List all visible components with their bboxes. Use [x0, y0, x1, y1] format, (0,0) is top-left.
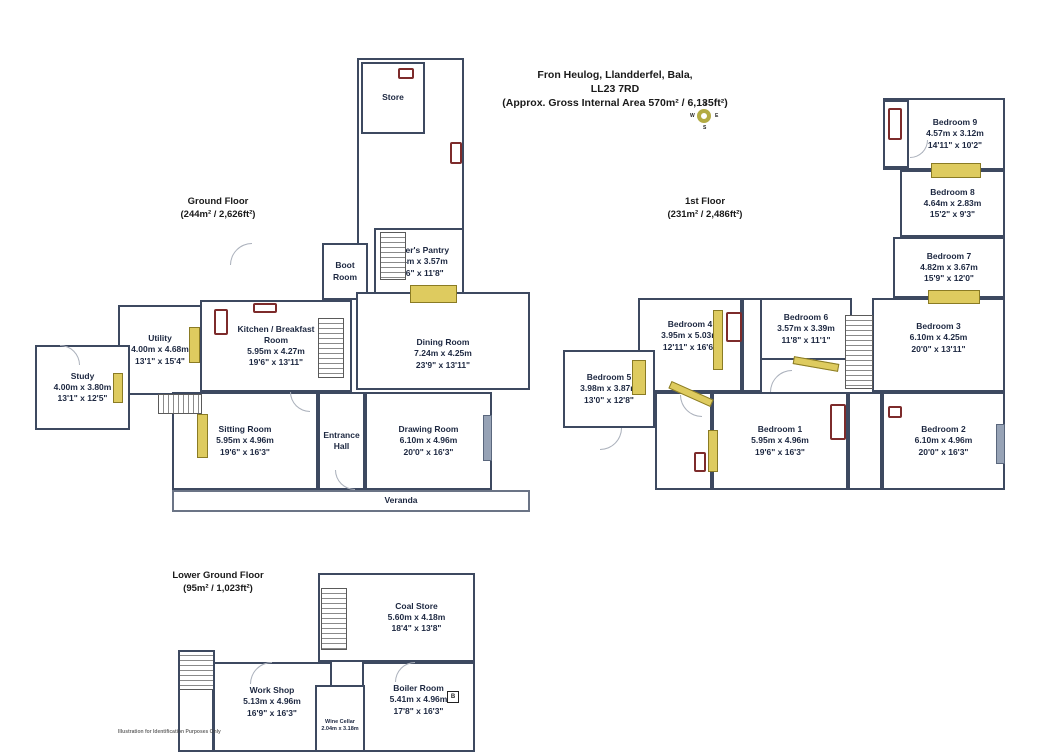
door-arc — [770, 370, 792, 392]
room-boiler-label: Boiler Room 5.41m x 4.96m 17'8" x 16'3" — [390, 683, 448, 730]
room-dim-imperial: 13'0" x 12'8" — [580, 395, 638, 406]
stove-icon — [253, 303, 277, 313]
stairs-lower — [321, 588, 347, 650]
room-bedroom3-label: Bedroom 3 6.10m x 4.25m 20'0" x 13'11" — [910, 321, 968, 368]
window — [632, 360, 646, 395]
bath-icon — [888, 108, 902, 140]
room-utility-label: Utility 4.00m x 4.68m 13'1" x 15'4" — [121, 333, 199, 366]
stairs-utility — [158, 394, 202, 414]
veranda-label: Veranda — [284, 495, 417, 506]
room-name: Work Shop — [243, 685, 301, 696]
room-wine-cellar-label: Wine Cellar 2.04m x 3.18m — [318, 705, 362, 733]
room-dim-metric: 5.95m x 4.27m — [229, 346, 324, 357]
compass-north: N — [703, 101, 707, 107]
room-boot-room-label: Boot Room — [329, 260, 361, 282]
ground-floor-label: Ground Floor (244m² / 2,626ft²) — [138, 196, 298, 222]
room-name: Coal Store — [388, 601, 446, 612]
room-name: Bedroom 3 — [910, 321, 968, 332]
room-dim-imperial: 15'9" x 12'0" — [920, 273, 978, 284]
room-dim-imperial: 20'0" x 16'3" — [399, 447, 459, 458]
room-dim-metric: 6.10m x 4.25m — [910, 332, 968, 343]
room-dim-imperial: 13'1" x 12'5" — [54, 393, 112, 404]
room-store-label: Store — [382, 92, 404, 103]
room-bedroom6-label: Bedroom 6 3.57m x 3.39m 11'8" x 11'1" — [777, 312, 835, 345]
lower-ground-floor-name: Lower Ground Floor — [138, 570, 298, 583]
room-study-label: Study 4.00m x 3.80m 13'1" x 12'5" — [54, 371, 112, 404]
room-dim-metric: 5.60m x 4.18m — [388, 612, 446, 623]
room-dim-imperial: 23'9" x 13'11" — [414, 360, 472, 371]
room-store: Store — [361, 62, 425, 134]
title-line-1: Fron Heulog, Llandderfel, Bala, — [480, 68, 750, 82]
compass-west: W — [690, 113, 695, 119]
room-name: Bedroom 7 — [920, 251, 978, 262]
window — [713, 310, 723, 370]
room-sitting-label: Sitting Room 5.95m x 4.96m 19'6" x 16'3" — [216, 424, 274, 457]
room-workshop: Work Shop 5.13m x 4.96m 16'9" x 16'3" — [212, 662, 332, 752]
room-bedroom1: Bedroom 1 5.95m x 4.96m 19'6" x 16'3" — [712, 392, 848, 490]
room-dim-imperial: 19'6" x 16'3" — [216, 447, 274, 458]
room-dim-imperial: 20'0" x 13'11" — [910, 344, 968, 355]
door-arc — [230, 243, 252, 265]
glazed-panel — [483, 415, 492, 461]
boiler-marker: B — [447, 691, 459, 703]
room-dim-imperial: 20'0" x 16'3" — [915, 447, 973, 458]
room-drawing: Drawing Room 6.10m x 4.96m 20'0" x 16'3" — [365, 392, 492, 490]
compass-east: E — [715, 113, 718, 119]
lower-ground-floor-area: (95m² / 1,023ft²) — [138, 583, 298, 596]
room-name: Bedroom 2 — [915, 424, 973, 435]
room-bedroom7: Bedroom 7 4.82m x 3.67m 15'9" x 12'0" — [893, 237, 1005, 298]
title-line-2: LL23 7RD — [480, 82, 750, 96]
veranda: Veranda — [172, 490, 530, 512]
room-dim-imperial: 17'8" x 16'3" — [390, 706, 448, 717]
room-name: Bedroom 1 — [751, 424, 809, 435]
room-name: Wine Cellar — [318, 719, 362, 726]
window — [189, 327, 200, 363]
room-name: Bedroom 5 — [580, 372, 638, 383]
toilet-icon — [694, 452, 706, 472]
room-name: Bedroom 6 — [777, 312, 835, 323]
room-bedroom3: Bedroom 3 6.10m x 4.25m 20'0" x 13'11" — [872, 298, 1005, 392]
room-dim-metric: 7.24m x 4.25m — [414, 348, 472, 359]
room-dim-imperial: 14'11" x 10'2" — [926, 140, 984, 151]
floorplan-page: Fron Heulog, Llandderfel, Bala, LL23 7RD… — [0, 0, 1038, 752]
room-bedroom1-label: Bedroom 1 5.95m x 4.96m 19'6" x 16'3" — [751, 424, 809, 457]
room-boiler: Boiler Room 5.41m x 4.96m 17'8" x 16'3" — [362, 662, 475, 752]
room-name: Study — [54, 371, 112, 382]
entry-corridor — [178, 650, 215, 752]
room-name: Bedroom 8 — [924, 187, 982, 198]
room-dim-metric: 5.13m x 4.96m — [243, 696, 301, 707]
room-dim-metric: 5.41m x 4.96m — [390, 694, 448, 705]
door-arc — [600, 428, 622, 450]
room-dim-metric: 3.57m x 3.39m — [777, 323, 835, 334]
room-dim-metric: 4.82m x 3.67m — [920, 262, 978, 273]
room-dim-metric: 6.10m x 4.96m — [915, 435, 973, 446]
room-bedroom8-label: Bedroom 8 4.64m x 2.83m 15'2" x 9'3" — [924, 187, 982, 220]
room-dim-imperial: 18'4" x 13'8" — [388, 623, 446, 634]
compass-south: S — [703, 125, 706, 131]
room-dim-imperial: 19'6" x 16'3" — [751, 447, 809, 458]
room-name: Sitting Room — [216, 424, 274, 435]
appliance-icon — [214, 309, 228, 335]
window — [410, 285, 457, 303]
room-dining-label: Dining Room 7.24m x 4.25m 23'9" x 13'11" — [414, 311, 472, 370]
room-name: Bedroom 9 — [926, 117, 984, 128]
room-name: Utility — [121, 333, 199, 344]
room-dim-metric: 3.95m x 5.03m — [661, 330, 719, 341]
sink-icon — [888, 406, 902, 418]
room-name: Kitchen / Breakfast Room — [229, 324, 324, 346]
window — [197, 414, 208, 458]
room-dim-metric: 6.10m x 4.96m — [399, 435, 459, 446]
room-bedroom5-label: Bedroom 5 3.98m x 3.87m 13'0" x 12'8" — [580, 372, 638, 405]
room-bedroom4-label: Bedroom 4 3.95m x 5.03m 12'11" x 16'6" — [661, 319, 719, 370]
window — [931, 163, 981, 178]
window — [113, 373, 123, 403]
ground-floor-name: Ground Floor — [138, 196, 298, 209]
bathroom — [742, 298, 762, 392]
stairs-pantry — [380, 232, 406, 280]
room-dim-metric: 5.95m x 4.96m — [751, 435, 809, 446]
compass-icon: N E S W — [692, 104, 718, 130]
room-name: Drawing Room — [399, 424, 459, 435]
room-dim-imperial: 13'1" x 15'4" — [121, 356, 199, 367]
room-bedroom7-label: Bedroom 7 4.82m x 3.67m 15'9" x 12'0" — [920, 251, 978, 284]
room-dim-imperial: 12'11" x 16'6" — [661, 342, 719, 353]
lower-ground-floor-label: Lower Ground Floor (95m² / 1,023ft²) — [138, 570, 298, 596]
toilet-icon — [726, 312, 742, 342]
room-kitchen-label: Kitchen / Breakfast Room 5.95m x 4.27m 1… — [229, 324, 324, 368]
stairs-first — [845, 315, 873, 389]
room-bedroom2-label: Bedroom 2 6.10m x 4.96m 20'0" x 16'3" — [915, 424, 973, 457]
room-name: Boiler Room — [390, 683, 448, 694]
room-bedroom8: Bedroom 8 4.64m x 2.83m 15'2" x 9'3" — [900, 170, 1005, 237]
room-dim-imperial: 16'9" x 16'3" — [243, 708, 301, 719]
first-floor-area: (231m² / 2,486ft²) — [625, 209, 785, 222]
room-dim-metric: 4.57m x 3.12m — [926, 128, 984, 139]
ground-floor-area: (244m² / 2,626ft²) — [138, 209, 298, 222]
room-coal-store-label: Coal Store 5.60m x 4.18m 18'4" x 13'8" — [348, 601, 446, 634]
room-dim-metric: 2.04m x 3.18m — [318, 726, 362, 733]
room-dim-imperial: 19'6" x 13'11" — [229, 357, 324, 368]
room-dim-metric: 4.00m x 3.80m — [54, 382, 112, 393]
room-name: Dining Room — [414, 337, 472, 348]
room-dim-metric: 5.95m x 4.96m — [216, 435, 274, 446]
stairs-ground — [318, 318, 344, 378]
room-workshop-label: Work Shop 5.13m x 4.96m 16'9" x 16'3" — [243, 685, 301, 728]
glazed-panel — [996, 424, 1005, 464]
toilet-icon — [398, 68, 414, 79]
room-dim-imperial: 15'2" x 9'3" — [924, 209, 982, 220]
room-bedroom6: Bedroom 6 3.57m x 3.39m 11'8" x 11'1" — [760, 298, 852, 360]
first-floor-label: 1st Floor (231m² / 2,486ft²) — [625, 196, 785, 222]
window — [928, 290, 980, 304]
room-drawing-label: Drawing Room 6.10m x 4.96m 20'0" x 16'3" — [399, 424, 459, 457]
room-dim-metric: 4.64m x 2.83m — [924, 198, 982, 209]
room-dining: Dining Room 7.24m x 4.25m 23'9" x 13'11" — [356, 292, 530, 390]
room-wine-cellar: Wine Cellar 2.04m x 3.18m — [315, 685, 365, 752]
first-floor-name: 1st Floor — [625, 196, 785, 209]
bathroom — [848, 392, 882, 490]
room-entrance-hall-label: Entrance Hall — [321, 430, 363, 452]
compass-ring — [697, 109, 711, 123]
room-dim-imperial: 11'8" x 11'1" — [777, 335, 835, 346]
room-dim-metric: 3.98m x 3.87m — [580, 383, 638, 394]
room-name: Bedroom 4 — [661, 319, 719, 330]
room-dim-metric: 4.00m x 4.68m — [121, 344, 199, 355]
window — [708, 430, 718, 472]
bath-icon — [450, 142, 462, 164]
bath-icon — [830, 404, 846, 440]
disclaimer-text: Illustration for Identification Purposes… — [118, 729, 221, 735]
